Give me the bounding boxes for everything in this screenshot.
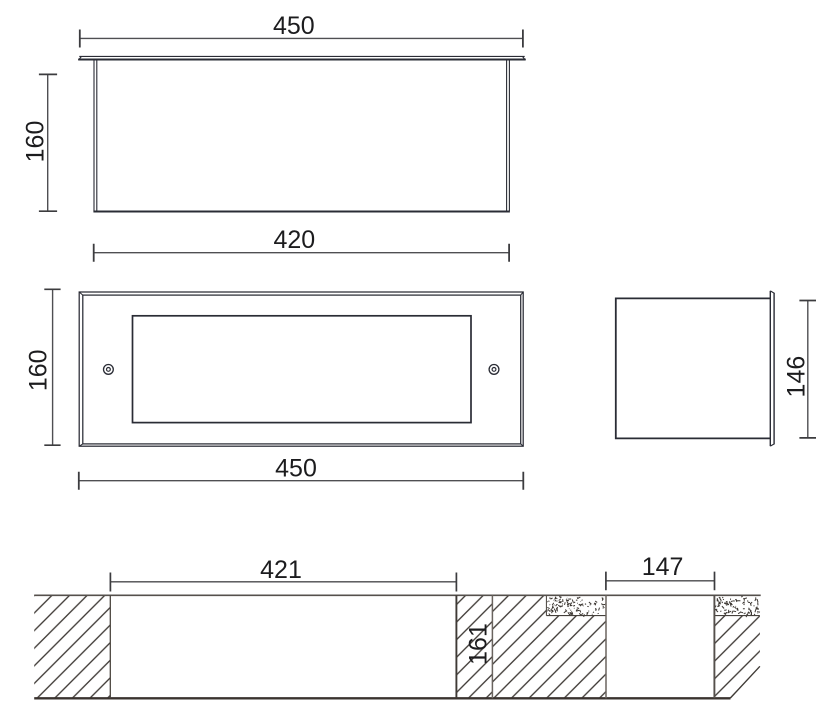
svg-text:146: 146 [783, 356, 811, 398]
svg-text:161: 161 [465, 623, 493, 665]
svg-text:450: 450 [275, 455, 317, 483]
svg-text:420: 420 [273, 226, 315, 254]
svg-text:147: 147 [642, 553, 684, 581]
svg-text:160: 160 [22, 121, 50, 163]
svg-text:160: 160 [24, 349, 52, 391]
svg-text:421: 421 [260, 556, 302, 584]
svg-text:450: 450 [273, 12, 315, 40]
